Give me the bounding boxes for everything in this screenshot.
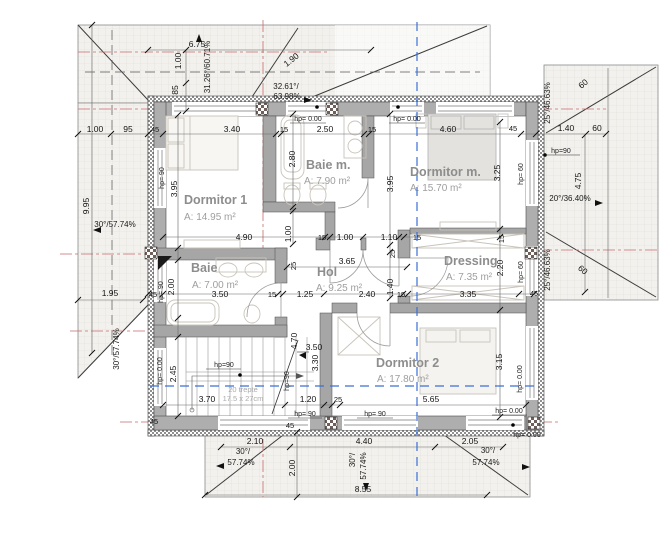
room-name-dormitor-1: Dormitor 1 xyxy=(184,193,247,207)
dim-label: 1.20 xyxy=(300,394,317,404)
dim-label: 4.40 xyxy=(356,436,373,446)
hp-label: hp= 0.00 xyxy=(294,116,322,123)
dim-label: 1.00 xyxy=(87,124,104,134)
slope-label: 25°/46.63% xyxy=(543,82,552,123)
dim-label: 15 xyxy=(368,125,376,134)
room-name-dormitor-2: Dormitor 2 xyxy=(376,356,439,370)
dim-label: 15 xyxy=(413,233,421,242)
stairs-note: 20 trepte xyxy=(228,385,258,394)
dim-label: 2.05 xyxy=(462,436,479,446)
dim-label: 3.15 xyxy=(494,353,504,370)
dim-label: 1.95 xyxy=(102,288,119,298)
room-area-dormitor-1: A: 14.95 m² xyxy=(184,212,236,223)
hp-label: hp= 0.00 xyxy=(495,408,523,415)
dim-label: 3.25 xyxy=(492,164,502,181)
slope-label: 30°/ xyxy=(348,452,357,467)
dim-label: 4.75 xyxy=(573,172,583,189)
slope-label: 57.74% xyxy=(227,458,254,467)
hp-label: hp= 0.00 xyxy=(157,357,164,385)
hp-label: hp= 0.00 xyxy=(517,365,524,393)
dim-label: 25 xyxy=(289,262,298,270)
dim-label: 45 xyxy=(530,289,538,298)
dim-label: 2.00 xyxy=(166,278,176,295)
slope-label: 63.98% xyxy=(273,92,300,101)
slope-label: 30°/57.74% xyxy=(112,328,121,369)
slope-label: 25°/46.63% xyxy=(543,249,552,290)
dim-label: 3.95 xyxy=(169,180,179,197)
slope-label: 57.74% xyxy=(472,458,499,467)
dim-label: 9.95 xyxy=(81,197,91,214)
room-name-dormitor-m: Dormitor m. xyxy=(410,165,481,179)
dim-label: 1.00 xyxy=(173,52,183,69)
dim-label: 45 xyxy=(509,124,517,133)
dim-label: 60 xyxy=(592,123,602,133)
stairs-note: 17.5 x 27cm xyxy=(223,394,264,403)
dim-label: 2.10 xyxy=(247,436,264,446)
room-name-baie: Baie xyxy=(191,261,217,275)
hp-label: hp= 90 xyxy=(158,281,165,303)
dim-label: 3.40 xyxy=(224,124,241,134)
dim-label: 45 xyxy=(286,421,294,430)
dim-label: 1.00 xyxy=(283,225,293,242)
dim-label: 8.55 xyxy=(355,484,372,494)
hp-label: hp= 90 xyxy=(364,411,386,418)
dim-label: 15 xyxy=(318,233,326,242)
dim-label: 45 xyxy=(149,290,157,299)
dim-label: 3.70 xyxy=(199,394,216,404)
hp-label: hp=90 xyxy=(214,362,234,369)
dim-label: 15 xyxy=(268,290,276,299)
hp-label: hp=90 xyxy=(284,371,291,391)
dim-label: 4.90 xyxy=(236,232,253,242)
dim-label: 1.25 xyxy=(297,289,314,299)
dim-label: 4.70 xyxy=(289,332,299,349)
dim-label: 45 xyxy=(150,417,158,426)
hp-label: hp= 0.00 xyxy=(513,432,541,439)
hp-label: hp= 60 xyxy=(518,163,525,185)
dim-label: 15 xyxy=(497,235,506,243)
dim-label: 2.45 xyxy=(168,365,178,382)
dim-label: 3.65 xyxy=(339,256,356,266)
slope-label: 30°/ xyxy=(481,446,496,455)
hp-label: hp= 90 xyxy=(294,411,316,418)
room-area-dormitor-2: A: 17.80 m² xyxy=(377,374,429,385)
hp-label: hp= 60 xyxy=(518,261,525,283)
room-name-baie-m: Baie m. xyxy=(306,158,350,172)
dim-label: 45 xyxy=(151,125,159,134)
hp-label: hp=90 xyxy=(551,148,571,155)
dim-label: 2.80 xyxy=(287,150,297,167)
dim-label: 2.50 xyxy=(317,124,334,134)
room-area-hol: A: 9.25 m² xyxy=(316,283,363,294)
dim-label: 3.30 xyxy=(310,354,320,371)
dim-label: 1.40 xyxy=(385,278,395,295)
hp-label: hp= 0.00 xyxy=(393,116,421,123)
slope-label: 57.74% xyxy=(359,452,368,479)
dim-label: 4.60 xyxy=(440,124,457,134)
dim-label: 15 xyxy=(280,125,288,134)
slope-label: 30°/ xyxy=(236,447,251,456)
dim-label: 3.95 xyxy=(385,175,395,192)
dim-label: 25 xyxy=(334,395,342,404)
dim-label: 15 xyxy=(397,290,405,299)
room-area-baie-m: A: 7.90 m² xyxy=(304,176,351,187)
dim-label: 25 xyxy=(388,250,397,258)
floor-plan-drawing: 1.00 95 45 3.40 15 2.50 15 4.60 45 1.40 … xyxy=(0,0,672,541)
floor-plan-page: 1.00 95 45 3.40 15 2.50 15 4.60 45 1.40 … xyxy=(0,0,672,541)
dim-label: 3.35 xyxy=(460,289,477,299)
room-area-dormitor-m: A: 15.70 m² xyxy=(410,183,462,194)
slope-label: 32.61°/ xyxy=(273,82,299,91)
dim-label: 5.65 xyxy=(423,394,440,404)
level-label: 3.50 xyxy=(306,342,323,352)
dim-label: 95 xyxy=(123,124,133,134)
room-name-hol: Hol xyxy=(317,265,337,279)
dim-label: 2.00 xyxy=(287,459,297,476)
slope-label: 31.26°/60.71% xyxy=(203,41,212,94)
dim-label: 1.40 xyxy=(558,123,575,133)
room-area-baie: A: 7.00 m² xyxy=(192,280,239,291)
dim-label: 85 xyxy=(170,85,180,95)
slope-label: 30°/57.74% xyxy=(94,220,135,229)
dim-label: 1.10 xyxy=(381,232,398,242)
slope-label: 20°/36.40% xyxy=(549,194,590,203)
dim-label: 1.00 xyxy=(337,232,354,242)
room-area-dressing: A: 7.35 m² xyxy=(446,272,493,283)
room-name-dressing: Dressing xyxy=(444,254,498,268)
hp-label: hp= 90 xyxy=(159,167,166,189)
